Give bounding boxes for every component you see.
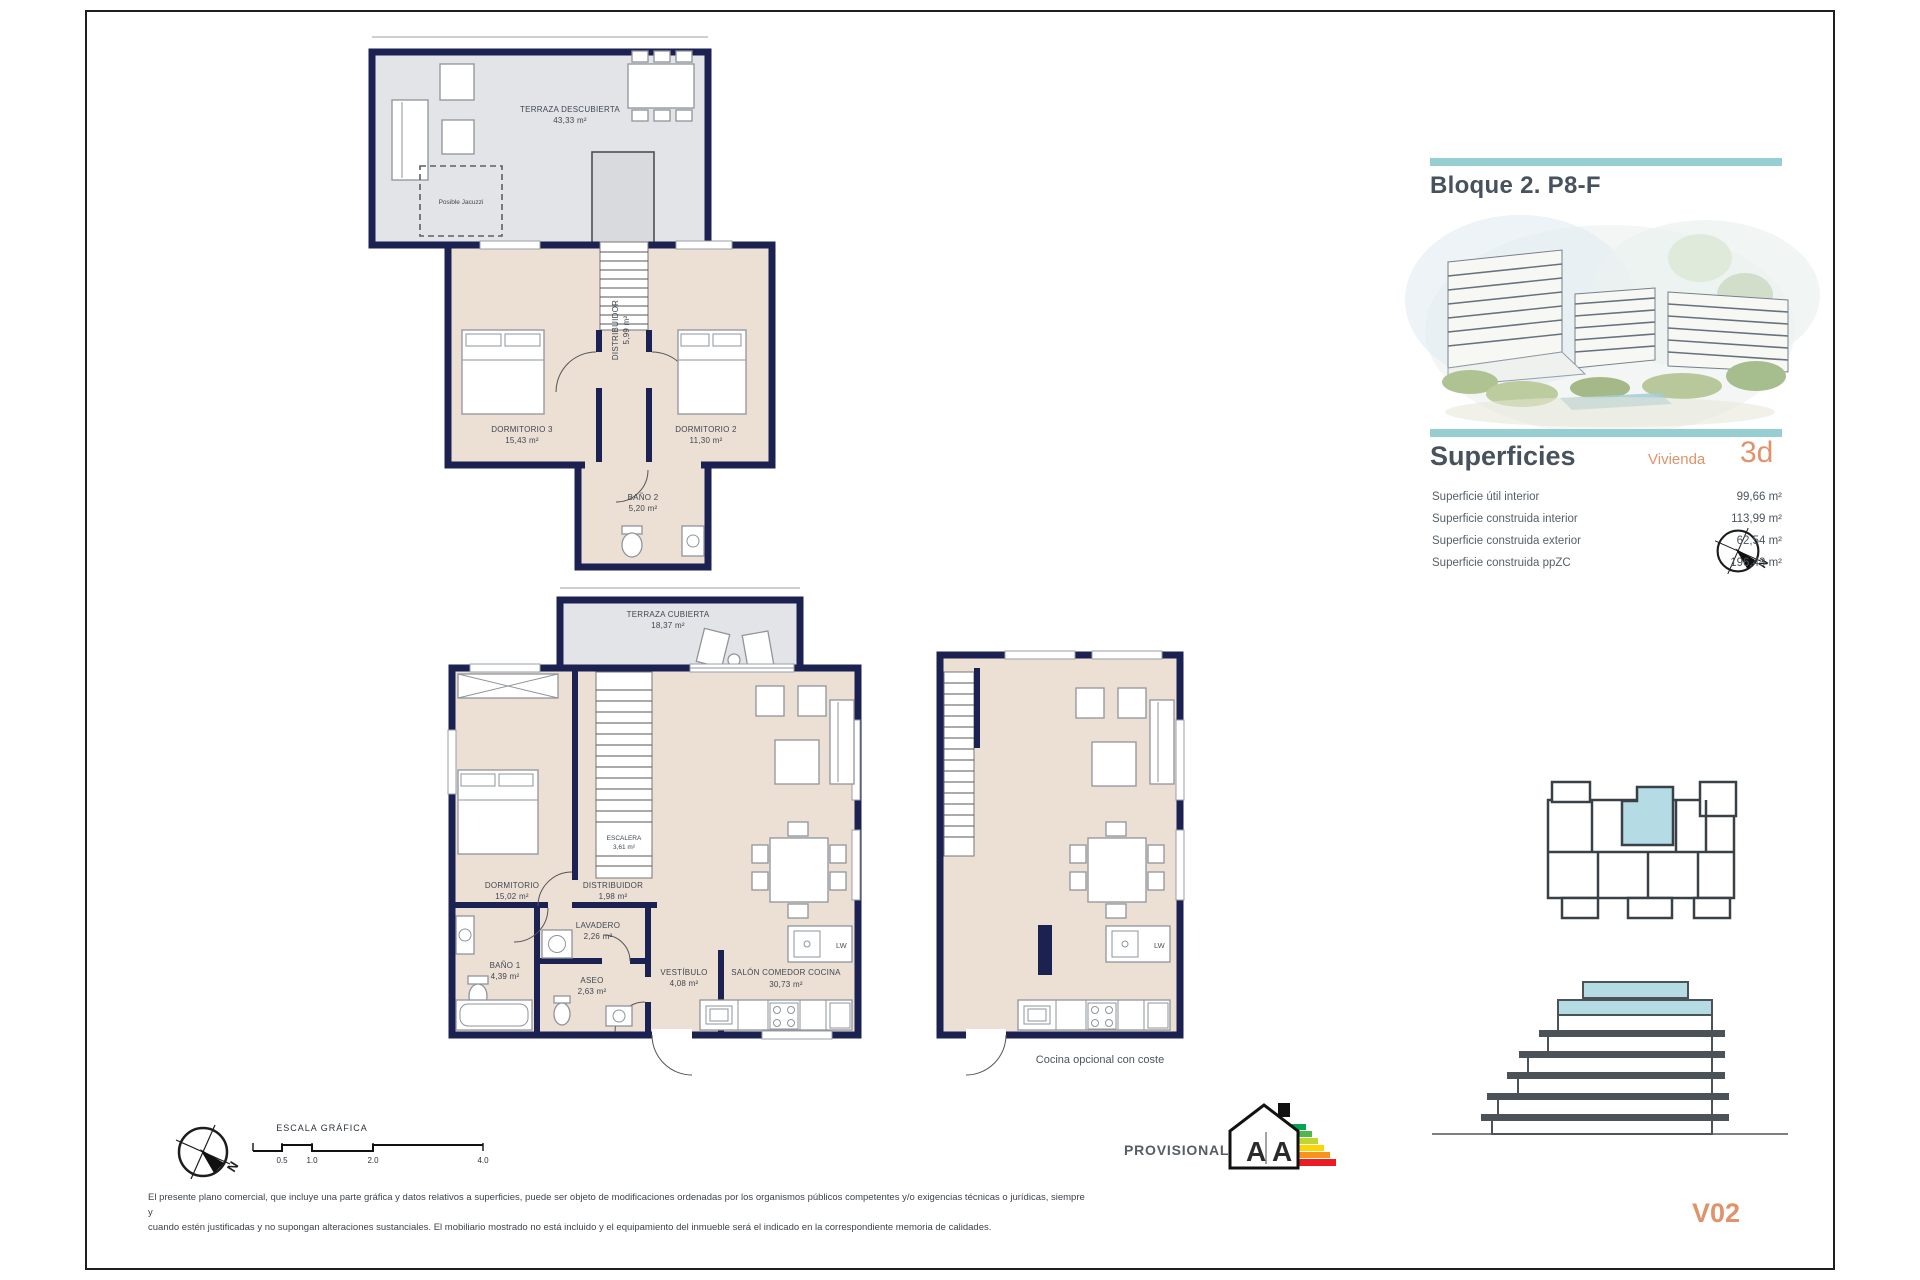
energy-letter-right: A: [1272, 1136, 1292, 1167]
wall: [645, 902, 651, 977]
svg-text:2,63 m²: 2,63 m²: [578, 987, 607, 996]
north-compass: N: [176, 1125, 242, 1179]
svg-text:11,30 m²: 11,30 m²: [690, 436, 723, 445]
bed-icon-dorm3: [462, 330, 544, 414]
energy-letter-left: A: [1246, 1136, 1266, 1167]
version-label: V02: [1692, 1198, 1740, 1229]
chimney: [1278, 1103, 1290, 1117]
wall: [646, 388, 652, 462]
coffee-table-icon: [775, 740, 819, 784]
scale-tick-label: 0.5: [276, 1156, 288, 1165]
svg-text:BAÑO 2: BAÑO 2: [628, 493, 659, 502]
superficie-row-value: 62,54 m²: [1737, 530, 1782, 552]
scale-bar-line: [253, 1145, 483, 1151]
main-floor-plan: TERRAZA CUBIERTA 18,37 m²: [448, 588, 860, 1075]
entrance-gap: [652, 1029, 692, 1041]
key-plan: [1548, 782, 1736, 918]
disclaimer-line-2: cuando estén justificadas y no supongan …: [148, 1220, 1086, 1235]
superficie-row-label: Superficie construida interior: [1432, 508, 1578, 530]
disclaimer-line-1: El presente plano comercial, que incluye…: [148, 1190, 1086, 1220]
svg-text:1,98 m²: 1,98 m²: [599, 892, 628, 901]
window-glyph: [676, 241, 732, 249]
armchair-icon: [798, 686, 826, 716]
window-glyph: [690, 664, 794, 672]
bathtub-icon: [456, 1000, 532, 1030]
superficie-row-value: 113,99 m²: [1731, 508, 1782, 530]
building-elevation: [1432, 982, 1788, 1134]
highlighted-floor: [1583, 982, 1688, 998]
scale-bar-title: ESCALA GRÁFICA: [276, 1123, 368, 1133]
toilet-icon: [622, 526, 642, 557]
wall: [645, 1002, 651, 1035]
coffee-table-icon: [1092, 742, 1136, 786]
stair-hatch: [944, 672, 974, 856]
svg-text:ESCALERA: ESCALERA: [607, 835, 642, 842]
svg-text:2,26 m²: 2,26 m²: [584, 932, 613, 941]
highlighted-floor: [1558, 1000, 1712, 1015]
superficie-row: Superficie construida ppZC 196,43 m²: [1432, 552, 1782, 574]
wall: [596, 388, 602, 462]
wall: [452, 902, 548, 908]
wall: [974, 668, 980, 748]
scale-tick-label: 4.0: [477, 1156, 489, 1165]
wall: [572, 902, 657, 908]
superficies-table: Superficie útil interior 99,66 m² Superf…: [1432, 486, 1782, 574]
svg-text:15,02 m²: 15,02 m²: [495, 892, 529, 901]
svg-text:DISTRIBUIDOR: DISTRIBUIDOR: [611, 300, 620, 360]
block-title: Bloque 2. P8-F: [1430, 172, 1601, 200]
superficie-row-label: Superficie útil interior: [1432, 486, 1539, 508]
sink-icon: [606, 1006, 632, 1026]
legal-disclaimer: El presente plano comercial, que incluye…: [148, 1190, 1086, 1235]
svg-text:43,33 m²: 43,33 m²: [553, 116, 587, 125]
window-glyph: [448, 730, 456, 794]
kitchen-variant-plan: LW: [940, 651, 1184, 1075]
provisional-label: PROVISIONAL: [1124, 1142, 1229, 1158]
armchair-icon: [440, 64, 474, 100]
wall: [572, 668, 578, 880]
sink-icon: [682, 526, 704, 556]
svg-text:15,43 m²: 15,43 m²: [505, 436, 539, 445]
sink-icon: [456, 916, 474, 954]
svg-text:30,73 m²: 30,73 m²: [769, 980, 803, 989]
dishwasher-label: LW: [1154, 941, 1166, 950]
svg-text:LAVADERO: LAVADERO: [576, 921, 620, 930]
wall: [1038, 925, 1052, 975]
window-glyph: [852, 830, 860, 900]
svg-text:4,08 m²: 4,08 m²: [670, 979, 699, 988]
svg-text:DORMITORIO 3: DORMITORIO 3: [491, 425, 553, 434]
kitchen-island: LW: [788, 926, 852, 962]
wall: [540, 958, 602, 964]
sofa-icon: [1150, 700, 1174, 784]
svg-text:TERRAZA DESCUBIERTA: TERRAZA DESCUBIERTA: [520, 105, 620, 114]
teal-accent-bar-mid: [1430, 429, 1782, 437]
svg-text:VESTÍBULO: VESTÍBULO: [660, 968, 707, 977]
vivienda-value: 3d: [1740, 436, 1773, 470]
window-glyph: [470, 664, 540, 672]
entrance-gap: [966, 1029, 1006, 1041]
highlighted-unit: [1622, 787, 1673, 845]
superficie-row-value: 99,66 m²: [1737, 486, 1782, 508]
wall: [534, 908, 540, 1035]
upper-floor-plan: Posible Jacuzzi TERRAZA DESCUBIERTA 43,3…: [372, 37, 772, 567]
superficie-row-label: Superficie construida ppZC: [1432, 552, 1571, 574]
energy-rating-icon: A A: [1230, 1103, 1336, 1168]
window-glyph: [1176, 830, 1184, 900]
scale-tick-label: 2.0: [367, 1156, 379, 1165]
window-glyph: [762, 1031, 832, 1039]
svg-text:SALÓN COMEDOR COCINA: SALÓN COMEDOR COCINA: [731, 968, 841, 977]
svg-text:DORMITORIO: DORMITORIO: [485, 881, 539, 890]
svg-text:18,37 m²: 18,37 m²: [651, 621, 685, 630]
wardrobe-icon: [458, 674, 558, 698]
superficie-row-value: 196,43 m²: [1730, 552, 1782, 574]
scale-bar: ESCALA GRÁFICA 0.5 1.0 2.0 4.0: [253, 1123, 489, 1165]
svg-text:TERRAZA CUBIERTA: TERRAZA CUBIERTA: [627, 610, 710, 619]
stair-shaft-upper: [592, 152, 654, 245]
kitchen-counter: [1018, 1000, 1170, 1030]
window-glyph: [480, 241, 540, 249]
sofa-icon: [392, 100, 428, 180]
washer-icon: [542, 930, 572, 958]
svg-text:3,61 m²: 3,61 m²: [613, 844, 636, 851]
superficie-row-label: Superficie construida exterior: [1432, 530, 1581, 552]
kitchen-island: LW: [1106, 926, 1170, 962]
superficie-row: Superficie útil interior 99,66 m²: [1432, 486, 1782, 508]
svg-text:DORMITORIO 2: DORMITORIO 2: [675, 425, 737, 434]
scale-tick-label: 1.0: [306, 1156, 318, 1165]
plan-sheet: Posible Jacuzzi TERRAZA DESCUBIERTA 43,3…: [0, 0, 1920, 1280]
svg-text:BAÑO 1: BAÑO 1: [490, 961, 521, 970]
superficie-row: Superficie construida interior 113,99 m²: [1432, 508, 1782, 530]
sofa-icon: [830, 700, 854, 784]
window-glyph: [1092, 651, 1162, 659]
building-render: [1405, 215, 1820, 435]
window-glyph: [1176, 720, 1184, 800]
vivienda-label: Vivienda: [1648, 451, 1705, 468]
toilet-icon: [554, 996, 570, 1025]
bath-passage: [585, 456, 701, 470]
kitchen-variant-caption: Cocina opcional con coste: [985, 1054, 1215, 1066]
svg-text:5,99 m²: 5,99 m²: [622, 315, 631, 344]
armchair-icon: [1076, 688, 1104, 718]
armchair-icon: [756, 686, 784, 716]
teal-accent-bar-top: [1430, 158, 1782, 166]
bed-icon-main: [458, 770, 538, 854]
jacuzzi-note: Posible Jacuzzi: [439, 199, 484, 206]
window-glyph: [1005, 651, 1075, 659]
floor-plans-canvas: Posible Jacuzzi TERRAZA DESCUBIERTA 43,3…: [0, 0, 1920, 1280]
wall: [596, 330, 602, 352]
superficie-row: Superficie construida exterior 62,54 m²: [1432, 530, 1782, 552]
wall: [646, 330, 652, 352]
svg-text:5,20 m²: 5,20 m²: [629, 504, 658, 513]
svg-text:4,39 m²: 4,39 m²: [491, 972, 520, 981]
north-letter: N: [224, 1159, 242, 1175]
kitchen-counter: [700, 1000, 852, 1030]
bed-icon-dorm2: [678, 330, 746, 414]
svg-text:ASEO: ASEO: [580, 976, 603, 985]
armchair-icon: [1118, 688, 1146, 718]
dining-table-icon: [628, 51, 694, 121]
side-table-icon: [442, 120, 474, 154]
dishwasher-label: LW: [836, 941, 848, 950]
superficies-title: Superficies: [1430, 441, 1576, 472]
svg-text:DISTRIBUIDOR: DISTRIBUIDOR: [583, 881, 643, 890]
